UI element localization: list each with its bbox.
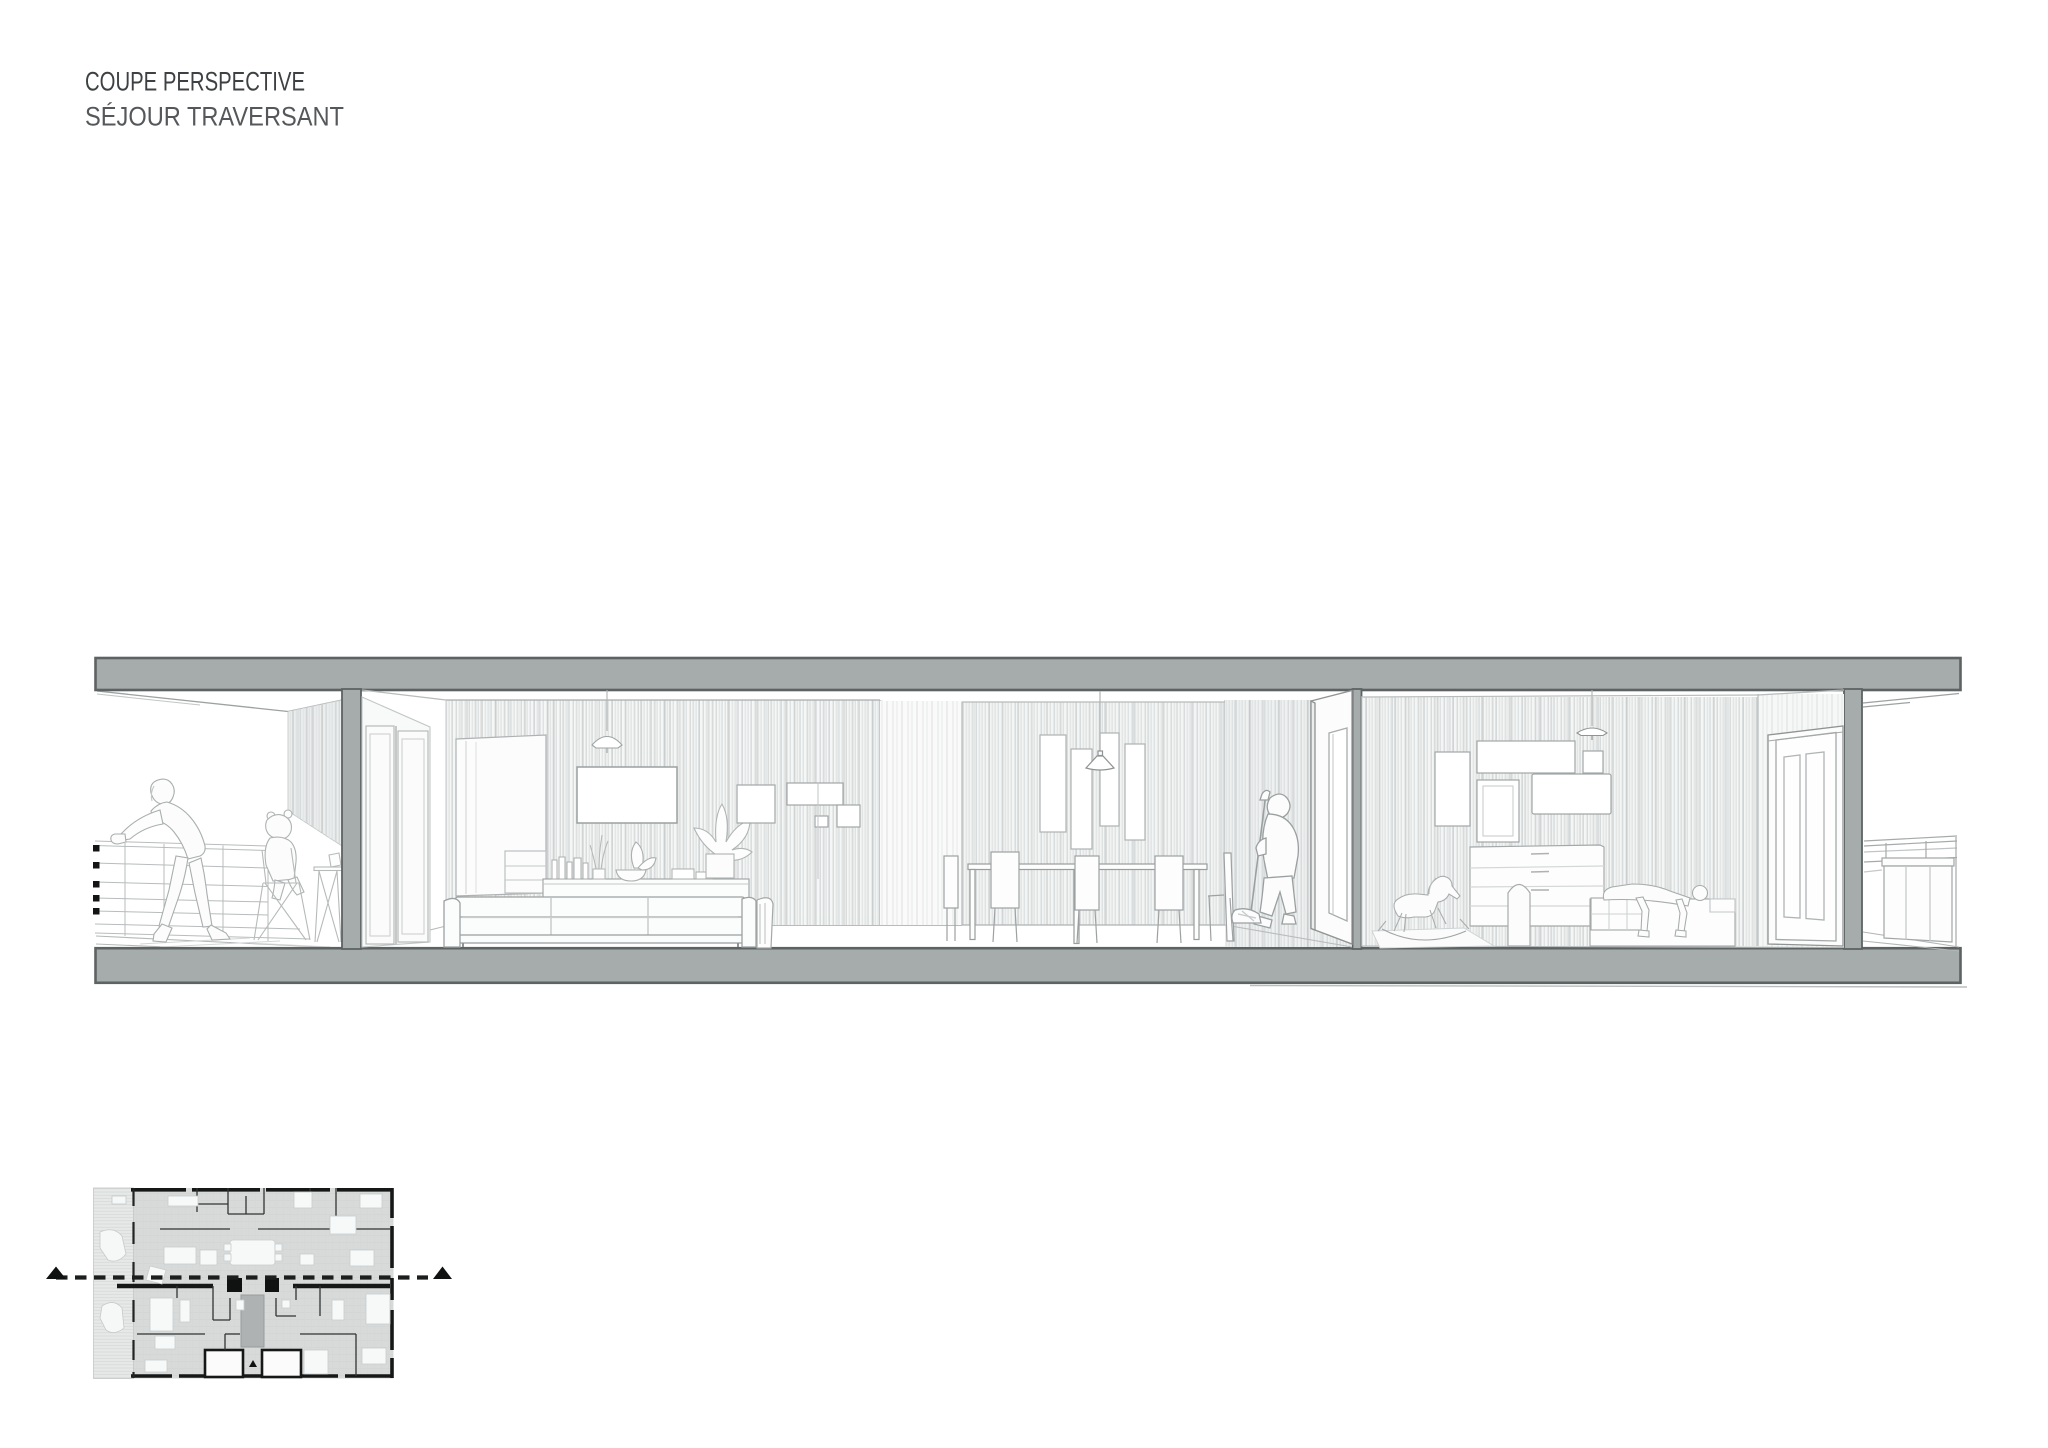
svg-text:SÉJOUR TRAVERSANT: SÉJOUR TRAVERSANT [85, 102, 344, 132]
svg-text:COUPE PERSPECTIVE: COUPE PERSPECTIVE [85, 67, 305, 97]
